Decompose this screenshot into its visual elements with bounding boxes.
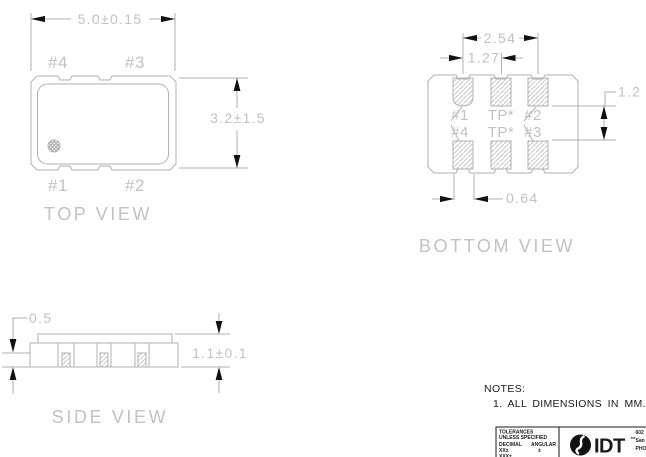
address-line-1: 602 bbox=[636, 430, 645, 436]
notes-heading: NOTES: bbox=[484, 383, 526, 395]
arrowhead-up-icon bbox=[216, 367, 223, 380]
pad-label-2: #2 bbox=[524, 107, 542, 124]
arrowhead-down-icon bbox=[10, 339, 17, 353]
arrowhead-up-icon bbox=[601, 106, 608, 119]
arrowhead-right-icon bbox=[440, 196, 454, 202]
dim-base-value: 0.5 bbox=[29, 310, 52, 326]
dimension-height: 3.2±1.5 bbox=[179, 78, 266, 168]
top-view: #4 #3 #1 #2 5.0±0.15 3.2±1.5 TOP VIEW bbox=[31, 11, 266, 224]
pad-label-tp-bottom: TP* bbox=[488, 124, 515, 141]
leader-line bbox=[13, 318, 27, 394]
title-block: TOLERANCES UNLESS SPECIFIED DECIMAL ANGU… bbox=[496, 427, 646, 457]
extension-lines bbox=[2, 353, 30, 367]
address-line-3: PHO bbox=[636, 446, 646, 452]
arrowhead-down-icon bbox=[601, 127, 608, 140]
arrowhead-up-icon bbox=[234, 78, 241, 91]
address-line-2: San bbox=[636, 438, 645, 444]
drawing-sheet: #4 #3 #1 #2 5.0±0.15 3.2±1.5 TOP VIEW bbox=[0, 0, 646, 457]
dimension-inner-pitch: 1.27 bbox=[440, 50, 523, 75]
side-pad-3 bbox=[138, 353, 146, 367]
dimension-pad-width: 0.64 bbox=[432, 174, 538, 206]
pad-1 bbox=[453, 78, 473, 106]
pad-label-tp-top: TP* bbox=[488, 107, 515, 124]
pad-label-1: #1 bbox=[451, 107, 469, 124]
pad-4 bbox=[453, 141, 473, 169]
pin-label-bottom-left: #1 bbox=[48, 176, 68, 195]
dim-pad-width-value: 0.64 bbox=[506, 190, 538, 206]
arrowhead-down-icon bbox=[234, 155, 241, 168]
arrowhead-right-icon bbox=[161, 16, 175, 22]
side-view-label: SIDE VIEW bbox=[52, 407, 168, 427]
tolerance-line-2: UNLESS SPECIFIED bbox=[499, 435, 547, 441]
bottom-view-label: BOTTOM VIEW bbox=[419, 236, 575, 256]
pad-label-4: #4 bbox=[451, 124, 469, 141]
mechanical-drawing-canvas: #4 #3 #1 #2 5.0±0.15 3.2±1.5 TOP VIEW bbox=[0, 0, 646, 457]
pin-label-top-right: #3 bbox=[125, 53, 145, 72]
dim-inner-pitch-value: 1.27 bbox=[468, 50, 500, 66]
pin1-marker-icon bbox=[48, 140, 60, 152]
pad-tp-bottom bbox=[491, 141, 511, 169]
arrowhead-left-icon bbox=[463, 35, 477, 41]
pad-3 bbox=[528, 141, 548, 169]
pin-label-top-left: #4 bbox=[48, 53, 68, 72]
package-outline bbox=[31, 76, 176, 170]
package-lid-profile bbox=[38, 334, 172, 343]
arrowhead-down-icon bbox=[216, 321, 223, 334]
arrowhead-left-icon bbox=[502, 55, 516, 61]
arrowhead-left-icon bbox=[474, 196, 488, 202]
top-view-label: TOP VIEW bbox=[44, 204, 152, 224]
side-pad-1 bbox=[62, 353, 70, 367]
angular-label: ANGULAR bbox=[531, 442, 556, 448]
pad-label-3: #3 bbox=[524, 124, 542, 141]
dim-width-value: 5.0±0.15 bbox=[78, 11, 143, 27]
dim-row-gap-value: 1.2 bbox=[618, 84, 641, 100]
dim-height-value: 3.2±1.5 bbox=[210, 110, 266, 126]
pad-tp-top bbox=[491, 78, 511, 106]
pad-2 bbox=[528, 78, 548, 106]
bottom-view: #1 TP* #2 #4 TP* #3 2.54 1.27 1.2 bbox=[419, 30, 642, 256]
side-view: 0.5 1.1±0.1 SIDE VIEW bbox=[2, 310, 248, 427]
arrowhead-right-icon bbox=[524, 35, 538, 41]
angular-tolerance: ± bbox=[538, 448, 541, 454]
note-item-1: 1. ALL DIMENSIONS IN MM. bbox=[493, 398, 646, 410]
notes-block: NOTES: 1. ALL DIMENSIONS IN MM. bbox=[484, 383, 646, 410]
pin-label-bottom-right: #2 bbox=[125, 176, 145, 195]
idt-wordmark: IDT bbox=[594, 436, 625, 457]
dimension-total-height: 1.1±0.1 bbox=[175, 313, 248, 393]
dim-outer-pitch-value: 2.54 bbox=[484, 30, 516, 46]
arrowhead-up-icon bbox=[10, 367, 17, 380]
dimension-base-thickness: 0.5 bbox=[2, 310, 52, 394]
arrowhead-left-icon bbox=[31, 16, 45, 22]
arrowhead-right-icon bbox=[449, 55, 463, 61]
side-pad-2 bbox=[100, 353, 108, 367]
extension-lines bbox=[454, 174, 474, 200]
dim-total-height-value: 1.1±0.1 bbox=[192, 345, 248, 361]
